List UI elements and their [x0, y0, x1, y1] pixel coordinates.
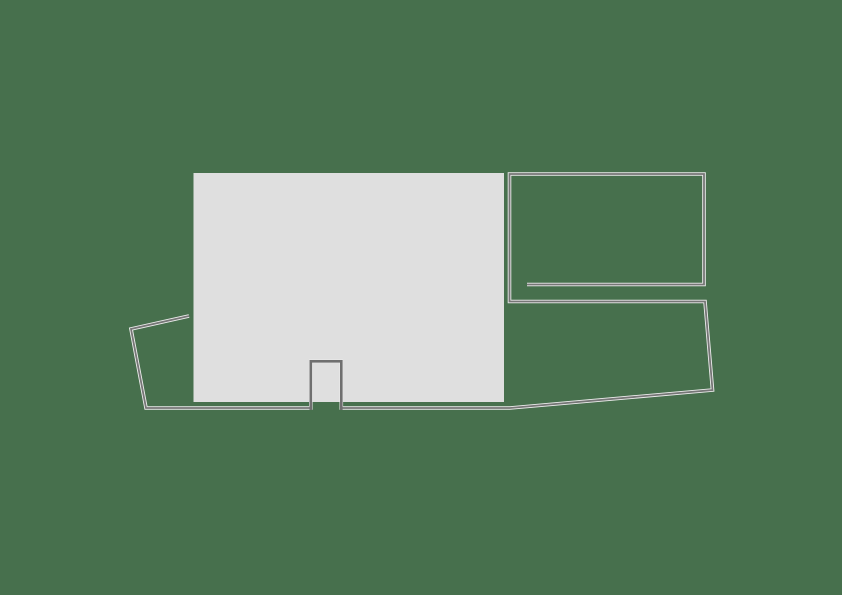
plan-canvas	[0, 0, 842, 595]
floor-area[interactable]	[194, 173, 505, 402]
plan-drawing	[0, 0, 842, 595]
